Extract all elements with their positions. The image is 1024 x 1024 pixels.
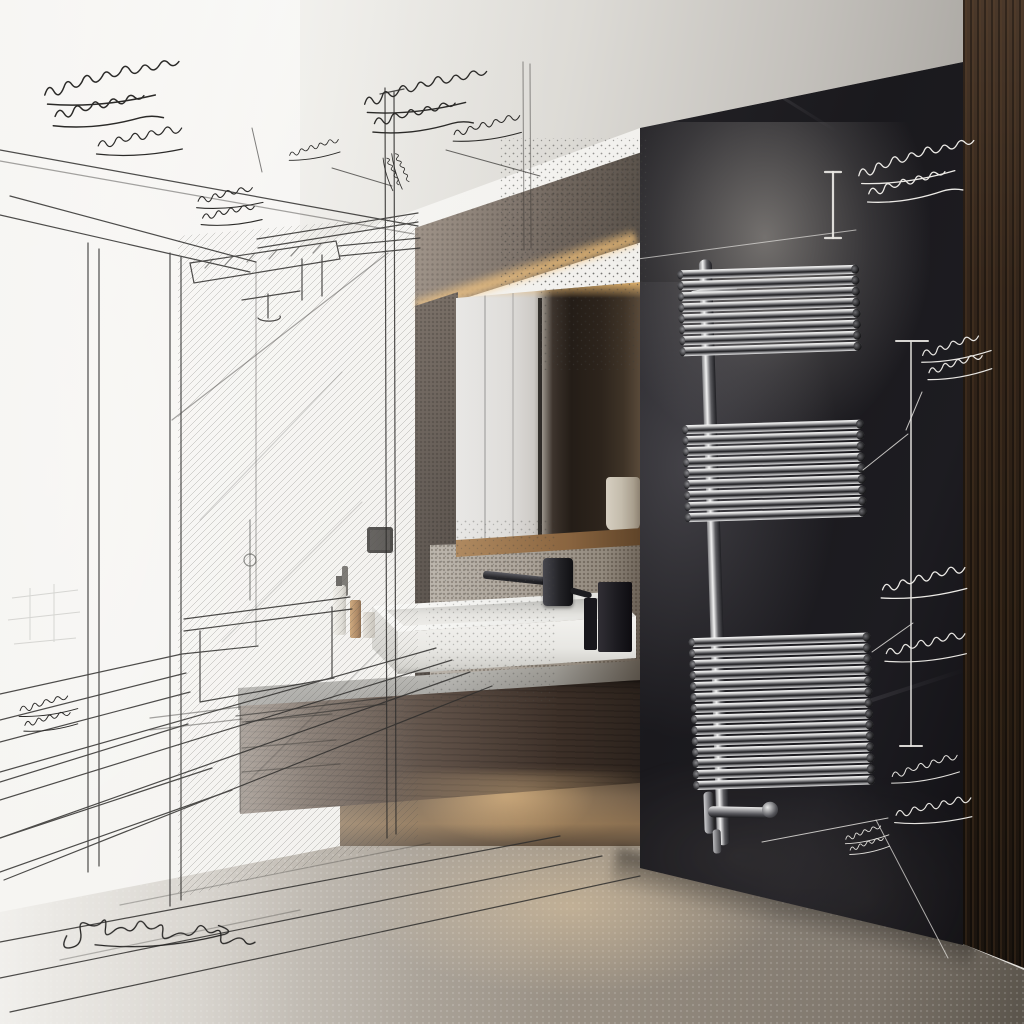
under-cabinet-glow — [370, 772, 670, 842]
window-daylight-glow — [0, 180, 240, 840]
mirror-reflection-line — [484, 293, 486, 547]
radiator — [675, 250, 886, 856]
lead-c — [252, 128, 262, 172]
note-top-left-2 — [96, 127, 183, 157]
dark-wood-paneling — [963, 0, 1024, 970]
dark-canister — [598, 582, 632, 652]
radiator-valve-arm — [708, 806, 768, 818]
wood-grain-texture — [963, 0, 1024, 970]
note-top-left-1 — [43, 60, 182, 129]
reflected-shower-door-frame — [538, 298, 542, 546]
cosmetic-jar — [363, 612, 375, 638]
backlit-mirror — [456, 282, 642, 552]
soap-pump-bottle — [333, 585, 346, 635]
pump-cap — [336, 576, 342, 586]
wall-faucet-plate — [543, 558, 573, 606]
dark-bottle — [584, 598, 597, 650]
amber-bottle — [350, 600, 361, 638]
mirror-reflection-line — [512, 287, 514, 546]
reflected-towel — [606, 477, 640, 531]
radiator-drain-pipe — [713, 829, 722, 853]
radiator-valve-knob — [762, 801, 778, 817]
wall-switch-plate — [367, 527, 393, 553]
bathroom-concept-image — [0, 0, 1024, 1024]
